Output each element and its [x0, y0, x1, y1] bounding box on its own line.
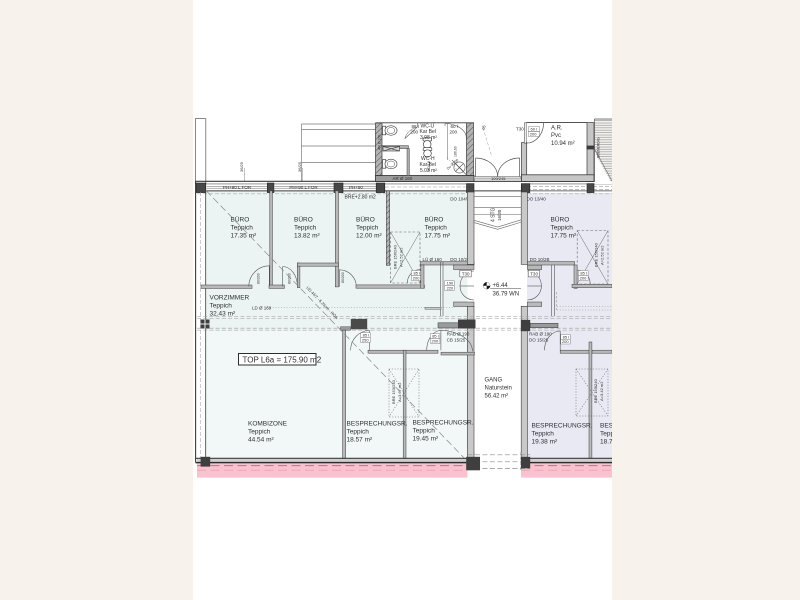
svg-text:100/245: 100/245	[491, 176, 506, 181]
svg-text:Teppich: Teppich	[600, 431, 623, 438]
svg-text:36/25: 36/25	[297, 161, 302, 172]
svg-text:CB 15/25: CB 15/25	[447, 337, 466, 342]
svg-text:12.00 m²: 12.00 m²	[356, 233, 382, 240]
svg-text:186,60: 186,60	[454, 146, 458, 157]
svg-text:220: 220	[447, 286, 454, 291]
svg-text:A=2.52 m2: A=2.52 m2	[399, 247, 404, 267]
svg-text:13.82 m²: 13.82 m²	[294, 233, 320, 240]
svg-text:Teppich: Teppich	[248, 429, 271, 436]
svg-text:BESPRECHUNGSR.: BESPRECHUNGSR.	[532, 423, 593, 430]
svg-text:19.45 m²: 19.45 m²	[413, 436, 439, 443]
svg-text:LD Ø 169: LD Ø 169	[252, 305, 272, 310]
svg-text:BRE+2.80 m2: BRE+2.80 m2	[345, 195, 376, 201]
svg-text:16/30: 16/30	[497, 209, 502, 221]
svg-text:88 l: 88 l	[412, 124, 419, 129]
svg-text:RAB Ø 190: RAB Ø 190	[529, 331, 552, 336]
svg-text:BESPRECHUNGSR.: BESPRECHUNGSR.	[600, 423, 661, 430]
svg-text:Teppich: Teppich	[347, 429, 370, 436]
svg-text:VORZIMMER: VORZIMMER	[210, 295, 250, 302]
svg-text:BRE 153/240: BRE 153/240	[593, 378, 598, 403]
svg-text:T30: T30	[530, 272, 538, 277]
svg-text:4 STG: 4 STG	[491, 207, 497, 222]
svg-text:Teppich: Teppich	[210, 303, 233, 310]
svg-text:Teppich: Teppich	[413, 428, 436, 435]
svg-text:+6.44: +6.44	[493, 283, 509, 289]
svg-text:Teppich: Teppich	[356, 225, 379, 232]
svg-text:BRE 156/240: BRE 156/240	[393, 244, 398, 269]
svg-text:Pvc: Pvc	[551, 133, 561, 139]
svg-text:BÜRO: BÜRO	[294, 216, 313, 224]
svg-text:BRE 156/240: BRE 156/240	[594, 242, 599, 267]
svg-text:44.54 m²: 44.54 m²	[248, 437, 274, 444]
svg-text:32.43 m²: 32.43 m²	[210, 311, 236, 318]
svg-text:Teppich: Teppich	[425, 225, 448, 232]
svg-text:200: 200	[580, 276, 587, 281]
svg-text:KOMBIZONE: KOMBIZONE	[248, 421, 288, 428]
svg-text:18.75 m²: 18.75 m²	[600, 439, 626, 446]
svg-text:17.75 m²: 17.75 m²	[425, 233, 451, 240]
svg-text:BÜRO: BÜRO	[425, 216, 444, 224]
svg-text:BÜRO: BÜRO	[231, 216, 250, 224]
svg-text:Teppich: Teppich	[294, 225, 317, 232]
svg-text:200: 200	[413, 276, 420, 281]
svg-text:GANG: GANG	[485, 378, 503, 384]
svg-text:PH+90 L FOR: PH+90 L FOR	[289, 185, 318, 190]
svg-text:DO 13/40: DO 13/40	[527, 197, 547, 202]
svg-text:PH+90 L FOR: PH+90 L FOR	[223, 185, 252, 190]
svg-text:17.35 m²: 17.35 m²	[231, 233, 257, 240]
svg-text:A.R.: A.R.	[551, 126, 563, 132]
svg-text:A=3.67 m2: A=3.67 m2	[397, 382, 402, 402]
svg-text:56.42 m²: 56.42 m²	[485, 394, 509, 400]
svg-text:200: 200	[432, 339, 439, 344]
svg-text:10.94 m²: 10.94 m²	[551, 141, 575, 147]
svg-text:BÜRO: BÜRO	[551, 216, 570, 224]
svg-text:TOP L6a = 175.90 m2: TOP L6a = 175.90 m2	[243, 356, 322, 365]
svg-text:A=2.52 m2: A=2.52 m2	[600, 245, 605, 265]
svg-text:Teppich: Teppich	[532, 431, 555, 438]
svg-text:17.75 m²: 17.75 m²	[551, 233, 577, 240]
svg-text:5.03 m²: 5.03 m²	[420, 168, 437, 174]
svg-text:Naturstein: Naturstein	[485, 386, 512, 392]
svg-text:3.98 m²: 3.98 m²	[420, 135, 437, 141]
svg-text:T30: T30	[516, 127, 524, 132]
svg-text:AR Ø 160: AR Ø 160	[378, 135, 382, 150]
svg-text:T30: T30	[462, 272, 470, 277]
svg-text:BÜRO: BÜRO	[356, 216, 375, 224]
svg-text:PH+90: PH+90	[349, 185, 363, 190]
svg-text:19.38 m²: 19.38 m²	[532, 439, 558, 446]
svg-text:LÜ Ø 160: LÜ Ø 160	[423, 256, 443, 262]
svg-text:DO 10/2B: DO 10/2B	[530, 257, 550, 262]
svg-text:BESPRECHUNGSR.: BESPRECHUNGSR.	[347, 421, 408, 428]
svg-text:A=3.42 m2: A=3.42 m2	[599, 381, 604, 401]
svg-text:250: 250	[362, 338, 369, 343]
svg-text:200: 200	[530, 132, 537, 137]
svg-text:18.57 m²: 18.57 m²	[347, 437, 373, 444]
svg-text:RAB Ø 190: RAB Ø 190	[447, 331, 470, 336]
svg-text:36.79 WN: 36.79 WN	[493, 292, 520, 298]
svg-text:BESPRECHUNGSR.: BESPRECHUNGSR.	[413, 420, 474, 427]
svg-text:200: 200	[411, 130, 419, 135]
svg-text:60 l: 60 l	[451, 124, 458, 129]
svg-text:200: 200	[562, 339, 569, 344]
svg-text:80/200: 80/200	[341, 272, 345, 283]
svg-text:Teppich: Teppich	[551, 225, 574, 232]
svg-text:80/200: 80/200	[257, 273, 261, 284]
svg-text:Teppich: Teppich	[231, 225, 254, 232]
svg-text:EBENERDIG: EBENERDIG	[596, 137, 600, 158]
svg-text:200: 200	[450, 130, 458, 135]
svg-text:36/25: 36/25	[239, 161, 244, 172]
svg-text:AR Ø 160: AR Ø 160	[393, 176, 413, 181]
